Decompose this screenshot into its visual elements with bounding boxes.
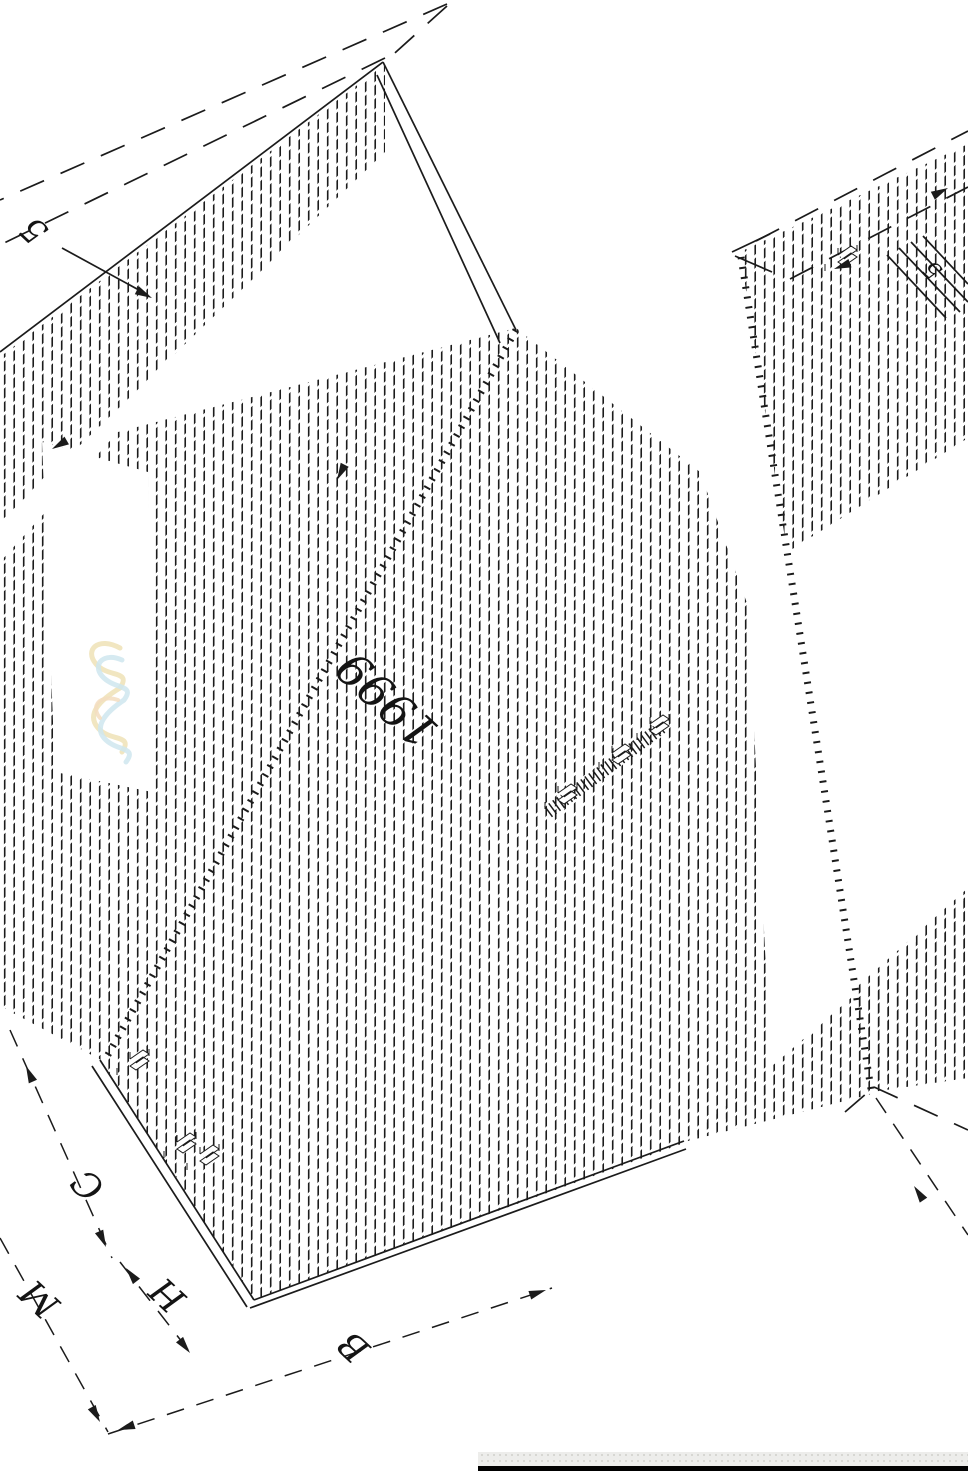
bottom-dotted-strip [478,1452,968,1466]
white-pocket-squiggle [42,442,152,792]
bottom-black-bar [478,1466,968,1471]
bottom-bar-layer [478,1452,968,1471]
isometric-cad-drawing: 51999CMHB5 [0,0,968,1471]
technical-drawing-canvas: 51999CMHB5 [0,0,968,1471]
